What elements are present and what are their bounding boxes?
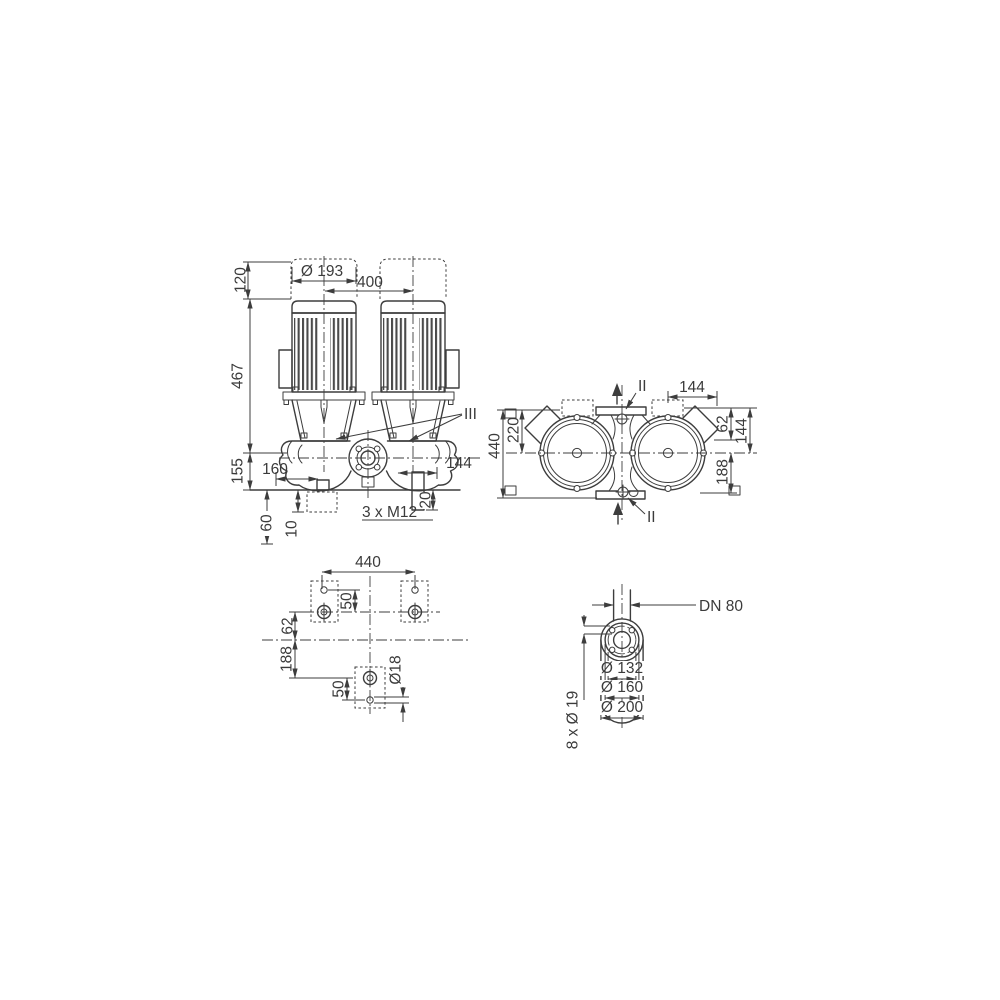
dim-top-clearance-120: 120 xyxy=(232,262,291,299)
dim-label-440-foundation: 440 xyxy=(355,554,381,571)
dim-label-60: 60 xyxy=(258,514,275,532)
dim-slot-lower-50: 50 xyxy=(330,678,365,700)
dim-flange-to-axis-144: 144 xyxy=(733,408,750,453)
dim-label-220: 220 xyxy=(505,417,522,443)
dim-label-467: 467 xyxy=(229,363,246,389)
section-callout-III: III xyxy=(336,406,477,441)
dim-label-200: Ø 200 xyxy=(601,699,644,716)
dim-label-120: 120 xyxy=(232,267,249,293)
dim-label-193: Ø 193 xyxy=(301,263,343,280)
dim-hole-spacing-440: 440 xyxy=(322,554,415,589)
dim-label-20: 20 xyxy=(417,491,434,509)
dim-label-8x19: 8 x Ø 19 xyxy=(564,691,581,750)
mounting-pad-lower xyxy=(355,667,385,708)
dim-label-dn80: DN 80 xyxy=(699,598,743,615)
terminal-box-right xyxy=(446,350,459,388)
dim-half-length-220: 220 xyxy=(505,410,522,453)
dim-label-440-top: 440 xyxy=(486,433,503,459)
dim-label-132: Ø 132 xyxy=(601,660,643,677)
drawing-canvas: 120 467 155 Ø 193 400 160 xyxy=(0,0,1000,1000)
section-label-II-top: II xyxy=(638,378,647,395)
dim-label-3xM12: 3 x M12 xyxy=(362,504,417,521)
dim-label-144-front: 144 xyxy=(446,455,472,472)
dim-offset-62: 62 xyxy=(279,612,309,640)
dim-right-port-144: 144 xyxy=(398,455,472,479)
motor-outline-hidden-left xyxy=(562,400,593,416)
foot-tab-bottom-left xyxy=(505,486,516,495)
motor-left xyxy=(283,256,365,472)
motor-right xyxy=(372,256,454,472)
foundation-plan: 440 50 62 188 50 Ø18 xyxy=(262,554,470,722)
dim-label-188-top: 188 xyxy=(714,459,731,485)
foundation-block-hidden xyxy=(307,492,337,512)
dim-label-160: 160 xyxy=(262,461,288,478)
dim-label-62-foundation: 62 xyxy=(279,617,296,634)
dim-label-50-lower: 50 xyxy=(330,680,347,698)
dim-label-10: 10 xyxy=(283,520,300,538)
dim-depth-10: 10 xyxy=(283,490,304,538)
mounting-pad-upper-left xyxy=(311,581,338,622)
dim-motor-width-144: 144 xyxy=(668,379,717,406)
dim-label-18: Ø18 xyxy=(387,655,404,684)
pump-dimensional-drawing: 120 467 155 Ø 193 400 160 xyxy=(0,0,1000,1000)
discharge-flange-top xyxy=(592,407,650,426)
section-callout-II-bottom: II xyxy=(628,498,656,526)
dim-depth-60: 60 xyxy=(258,490,275,544)
flow-arrow-bottom xyxy=(613,502,623,524)
section-label-III: III xyxy=(464,406,477,423)
suction-flange-bottom xyxy=(596,485,645,499)
dim-slot-upper-50: 50 xyxy=(328,590,360,612)
flange-detail-view: DN 80 8 x Ø 19 Ø 132 Ø 160 xyxy=(564,584,743,749)
dim-motor-diameter-193: Ø 193 xyxy=(292,263,356,284)
dim-base-height-155: 155 xyxy=(229,453,252,490)
dim-axis-to-hole-188: 188 xyxy=(700,453,737,493)
dim-hole-diameter-18: Ø18 xyxy=(374,655,409,722)
front-view-elevation: 120 467 155 Ø 193 400 160 xyxy=(229,256,483,544)
dim-foot-height-20: 20 xyxy=(417,490,438,510)
dim-outer-diameter-200: Ø 200 xyxy=(598,699,646,720)
dim-nominal-dn80: DN 80 xyxy=(592,598,743,615)
dim-label-50-upper: 50 xyxy=(338,592,355,610)
dim-label-62-top: 62 xyxy=(714,415,731,432)
dim-label-160-flange: Ø 160 xyxy=(601,679,644,696)
dim-label-400: 400 xyxy=(357,274,383,291)
pump-foot-left xyxy=(317,480,329,490)
top-view-plan: II II 440 220 144 62 xyxy=(486,378,757,526)
flow-arrow-top xyxy=(612,383,622,404)
dim-label-155: 155 xyxy=(229,458,246,484)
dim-offset-188: 188 xyxy=(278,640,353,678)
section-label-II-bottom: II xyxy=(647,509,656,526)
dim-label-144-topview: 144 xyxy=(679,379,705,396)
terminal-box-left xyxy=(279,350,292,388)
dim-label-144-right: 144 xyxy=(733,418,750,444)
section-callout-II-top: II xyxy=(626,378,647,409)
dim-label-188-foundation: 188 xyxy=(278,646,295,672)
